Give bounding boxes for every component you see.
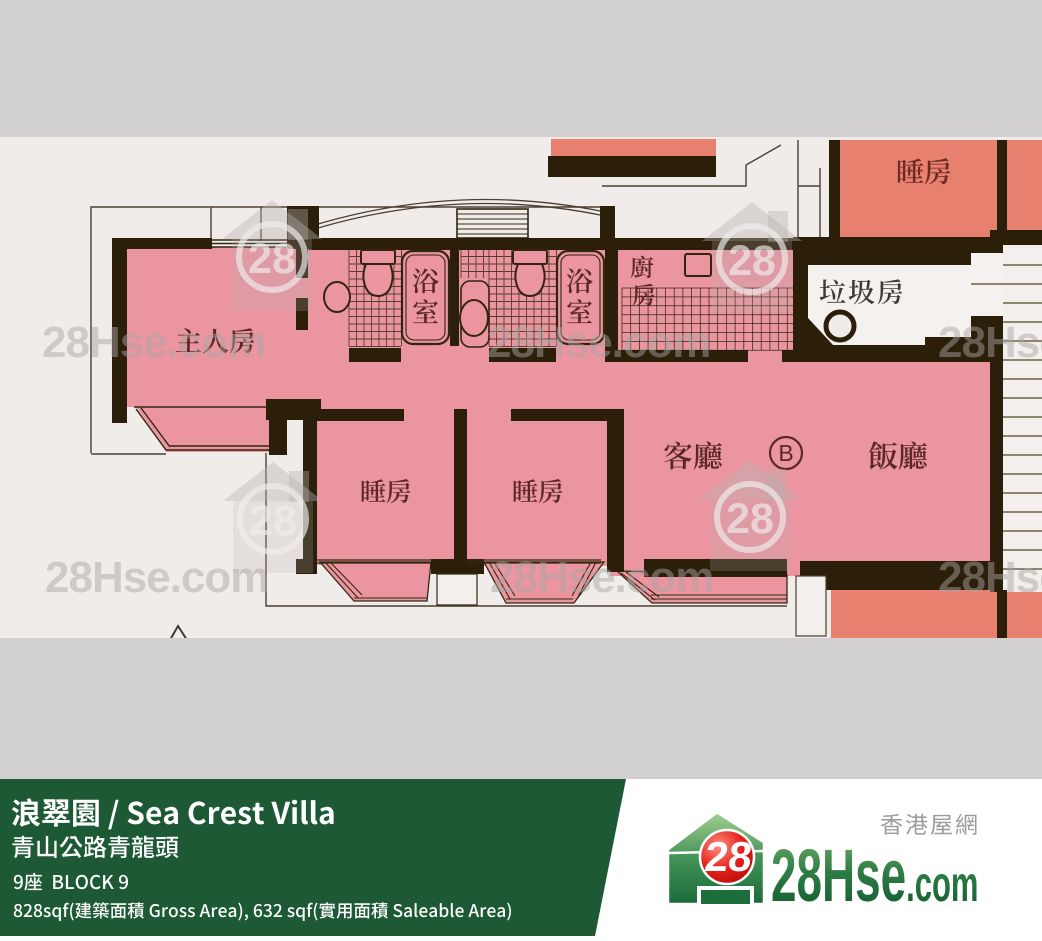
svg-text:28Hse.c: 28Hse.c (938, 318, 1042, 367)
svg-text:28Hse.com: 28Hse.com (490, 553, 713, 602)
svg-text:28: 28 (248, 235, 296, 283)
svg-text:28Hse.c: 28Hse.c (938, 553, 1042, 602)
svg-text:28: 28 (726, 495, 774, 543)
svg-text:28: 28 (728, 237, 776, 285)
svg-text:28Hse.com: 28Hse.com (42, 318, 265, 367)
svg-text:28: 28 (249, 497, 297, 545)
svg-text:28Hse.com: 28Hse.com (487, 318, 710, 367)
svg-text:28Hse.com: 28Hse.com (45, 553, 268, 602)
svg-text:28: 28 (703, 833, 755, 880)
svg-text:B: B (778, 440, 793, 466)
